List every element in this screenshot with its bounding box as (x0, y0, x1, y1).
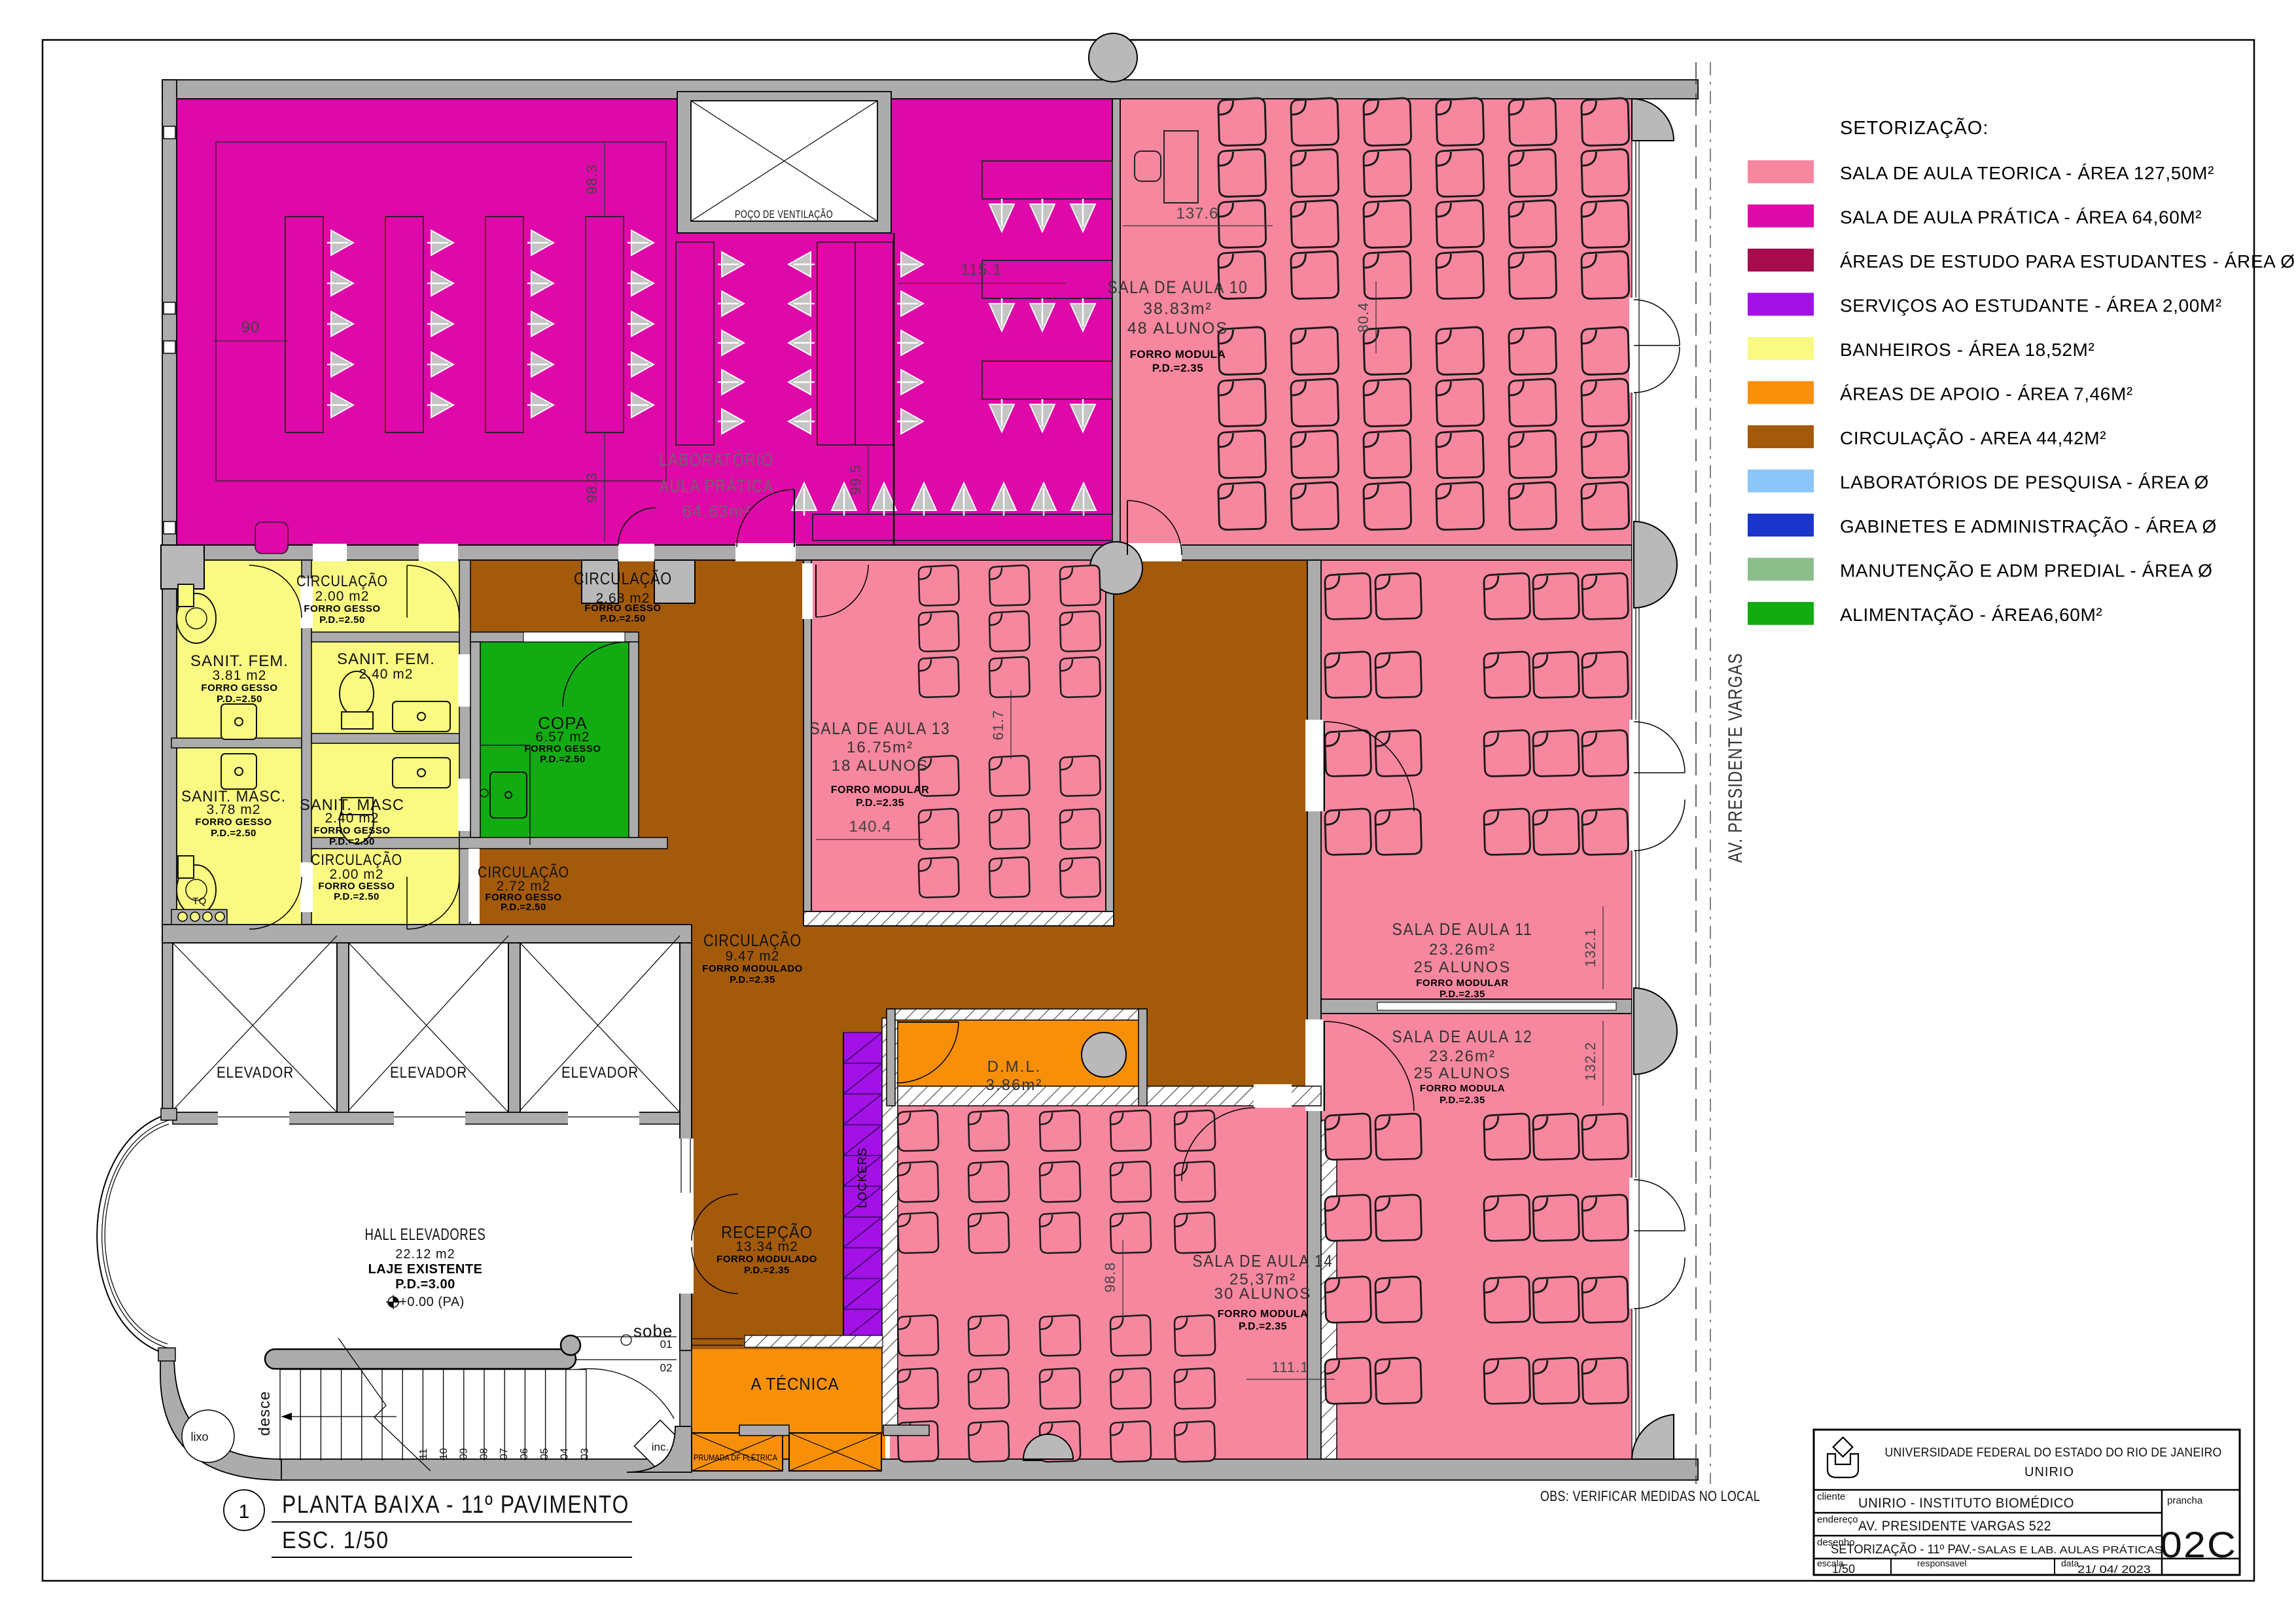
svg-text:HALL ELEVADORES: HALL ELEVADORES (365, 1226, 486, 1244)
svg-text:11: 11 (418, 1449, 429, 1460)
svg-text:P.D.=3.00: P.D.=3.00 (395, 1277, 455, 1292)
svg-text:FORRO GESSO: FORRO GESSO (304, 603, 380, 614)
svg-text:GABINETES E ADMINISTRAÇÃO - ÁR: GABINETES E ADMINISTRAÇÃO - ÁREA Ø (1840, 516, 2217, 537)
svg-text:P.D.=2.35: P.D.=2.35 (856, 798, 904, 809)
svg-text:SETORIZAÇÃO - 11º PAV.-: SETORIZAÇÃO - 11º PAV.- (1831, 1542, 1976, 1557)
svg-text:MANUTENÇÃO E ADM PREDIAL - ÁRE: MANUTENÇÃO E ADM PREDIAL - ÁREA Ø (1840, 561, 2213, 581)
svg-text:inc.: inc. (652, 1441, 669, 1453)
svg-text:prancha: prancha (2167, 1495, 2203, 1506)
svg-text:21/ 04/ 2023: 21/ 04/ 2023 (2077, 1563, 2151, 1576)
svg-text:FORRO MODULAR: FORRO MODULAR (1416, 978, 1509, 989)
svg-text:lixo: lixo (190, 1430, 208, 1443)
svg-text:01: 01 (660, 1338, 673, 1350)
svg-text:SANIT. FEM.: SANIT. FEM. (190, 652, 289, 670)
svg-text:FORRO MODULAR: FORRO MODULAR (831, 785, 929, 796)
svg-text:SALA DE AULA TEORICA - ÁREA 12: SALA DE AULA TEORICA - ÁREA 127,50M² (1840, 163, 2214, 183)
svg-text:SALA DE AULA 14: SALA DE AULA 14 (1193, 1251, 1333, 1271)
svg-text:SALA DE AULA PRÁTICA - ÁREA 64: SALA DE AULA PRÁTICA - ÁREA 64,60M² (1840, 207, 2202, 228)
svg-text:30 ALUNOS: 30 ALUNOS (1214, 1285, 1312, 1303)
svg-text:38.83m²: 38.83m² (1143, 300, 1212, 318)
svg-text:CIRCULAÇÃO - AREA 44,42M²: CIRCULAÇÃO - AREA 44,42M² (1840, 428, 2106, 448)
svg-text:3.86m²: 3.86m² (986, 1076, 1043, 1094)
svg-text:data: data (2061, 1558, 2079, 1568)
svg-text:23.26m²: 23.26m² (1429, 941, 1496, 959)
svg-text:P.D.=2.35: P.D.=2.35 (744, 1265, 790, 1276)
svg-text:132.2: 132.2 (1582, 1042, 1598, 1081)
svg-text:ELEVADOR: ELEVADOR (561, 1064, 639, 1082)
svg-text:PRUMADA DF FLÉTRICA: PRUMADA DF FLÉTRICA (694, 1453, 777, 1462)
svg-text:SANIT. FEM.: SANIT. FEM. (337, 650, 435, 668)
svg-text:98.8: 98.8 (1102, 1262, 1118, 1293)
svg-text:SERVIÇOS AO ESTUDANTE - ÁREA 2: SERVIÇOS AO ESTUDANTE - ÁREA 2,00M² (1840, 296, 2222, 316)
svg-text:endereço: endereço (1817, 1514, 1858, 1525)
svg-text:80.4: 80.4 (1355, 302, 1371, 333)
svg-text:05: 05 (539, 1448, 550, 1460)
svg-text:POÇO DE VENTILAÇÃO: POÇO DE VENTILAÇÃO (735, 208, 833, 221)
svg-text:115.1: 115.1 (961, 261, 1002, 279)
svg-text:SALA DE AULA 11: SALA DE AULA 11 (1392, 919, 1533, 939)
svg-text:2.40 m2: 2.40 m2 (325, 811, 380, 826)
svg-text:48 ALUNOS: 48 ALUNOS (1127, 319, 1228, 338)
svg-text:LABORATÓRIOS DE PESQUISA - ÁRE: LABORATÓRIOS DE PESQUISA - ÁREA Ø (1840, 472, 2209, 493)
svg-text:FORRO GESSO: FORRO GESSO (313, 825, 390, 836)
svg-text:FORRO MODULA: FORRO MODULA (1218, 1309, 1308, 1320)
svg-text:ELEVADOR: ELEVADOR (390, 1064, 467, 1082)
svg-text:SALA DE AULA 12: SALA DE AULA 12 (1392, 1027, 1533, 1046)
svg-text:16.75m²: 16.75m² (847, 739, 913, 756)
svg-text:OBS: VERIFICAR MEDIDAS NO LOCA: OBS: VERIFICAR MEDIDAS NO LOCAL (1540, 1488, 1760, 1504)
svg-text:FORRO MODULADO: FORRO MODULADO (702, 963, 803, 974)
svg-text:03: 03 (579, 1448, 590, 1460)
svg-text:98.3: 98.3 (584, 164, 600, 195)
svg-text:ÁREAS DE ESTUDO PARA ESTUDANTE: ÁREAS DE ESTUDO PARA ESTUDANTES - ÁREA Ø (1840, 251, 2295, 272)
svg-text:07: 07 (499, 1448, 510, 1460)
svg-text:09: 09 (459, 1448, 470, 1460)
svg-text:ELEVADOR: ELEVADOR (217, 1064, 294, 1082)
svg-text:P.D.=2.50: P.D.=2.50 (334, 891, 380, 902)
svg-text:desce: desce (256, 1390, 274, 1436)
svg-text:9.47 m2: 9.47 m2 (726, 949, 780, 964)
svg-text:BANHEIROS - ÁREA 18,52M²: BANHEIROS - ÁREA 18,52M² (1840, 340, 2094, 360)
svg-text:10: 10 (438, 1448, 450, 1460)
svg-text:AV. PRESIDENTE VARGAS 522: AV. PRESIDENTE VARGAS 522 (1858, 1519, 2051, 1534)
svg-text:SALA DE AULA 10: SALA DE AULA 10 (1108, 277, 1248, 297)
svg-text:02: 02 (660, 1362, 673, 1374)
svg-text:P.D.=2.35: P.D.=2.35 (1439, 989, 1485, 1000)
svg-text:UNIRIO: UNIRIO (2024, 1465, 2074, 1479)
svg-text:6.57 m2: 6.57 m2 (536, 730, 590, 745)
svg-text:D.M.L.: D.M.L. (987, 1058, 1042, 1076)
svg-text:P.D.=2.50: P.D.=2.50 (501, 902, 546, 913)
svg-text:3.81 m2: 3.81 m2 (213, 668, 267, 683)
svg-text:140.4: 140.4 (849, 818, 891, 836)
svg-text:ALIMENTAÇÃO - ÁREA6,60M²: ALIMENTAÇÃO - ÁREA6,60M² (1840, 605, 2102, 625)
svg-text:90: 90 (241, 319, 260, 336)
svg-text:23.26m²: 23.26m² (1429, 1048, 1496, 1065)
svg-text:LABORATÓRIO: LABORATÓRIO (660, 450, 774, 470)
svg-text:P.D.=2.50: P.D.=2.50 (217, 694, 262, 705)
svg-text:P.D.=2.35: P.D.=2.35 (1439, 1095, 1485, 1106)
svg-text:LOCKERS: LOCKERS (856, 1147, 869, 1208)
svg-text:UNIVERSIDADE FEDERAL DO ESTADO: UNIVERSIDADE FEDERAL DO ESTADO DO RIO DE… (1885, 1446, 2222, 1460)
svg-text:FORRO MODULA: FORRO MODULA (1420, 1083, 1505, 1094)
svg-text:22.12 m2: 22.12 m2 (395, 1247, 455, 1262)
svg-text:137.6: 137.6 (1176, 205, 1218, 222)
svg-text:111.1: 111.1 (1272, 1359, 1309, 1375)
svg-text:AV. PRESIDENTE VARGAS: AV. PRESIDENTE VARGAS (1725, 653, 1746, 863)
svg-text:2.40 m2: 2.40 m2 (359, 667, 414, 682)
svg-text:CIRCULAÇÃO: CIRCULAÇÃO (574, 569, 672, 588)
svg-text:02C: 02C (2160, 1524, 2237, 1565)
svg-text:+0.00 (PA): +0.00 (PA) (399, 1295, 465, 1309)
svg-text:99.5: 99.5 (847, 465, 864, 495)
svg-text:LAJE EXISTENTE: LAJE EXISTENTE (368, 1262, 483, 1277)
svg-text:P.D.=2.50: P.D.=2.50 (600, 613, 646, 624)
svg-text:25 ALUNOS: 25 ALUNOS (1414, 1065, 1511, 1082)
svg-text:FORRO MODULA: FORRO MODULA (1130, 348, 1226, 361)
svg-text:98.3: 98.3 (584, 472, 600, 503)
svg-text:UNIRIO - INSTITUTO BIOMÉDICO: UNIRIO - INSTITUTO BIOMÉDICO (1858, 1496, 2074, 1511)
svg-text:FORRO GESSO: FORRO GESSO (195, 817, 272, 828)
svg-text:2.00 m2: 2.00 m2 (330, 867, 384, 882)
svg-text:P.D.=2.35: P.D.=2.35 (730, 974, 775, 985)
svg-text:FORRO GESSO: FORRO GESSO (524, 743, 601, 754)
svg-text:CIRCULAÇÃO: CIRCULAÇÃO (311, 851, 402, 869)
svg-text:SALAS E LAB. AULAS PRÁTICAS: SALAS E LAB. AULAS PRÁTICAS (1977, 1544, 2163, 1556)
svg-text:FORRO GESSO: FORRO GESSO (584, 603, 661, 614)
svg-text:64.63m²: 64.63m² (682, 501, 751, 521)
svg-text:FORRO MODULADO: FORRO MODULADO (716, 1254, 817, 1265)
svg-text:132.1: 132.1 (1582, 928, 1598, 967)
svg-text:06: 06 (519, 1448, 530, 1460)
svg-text:P.D.=2.50: P.D.=2.50 (211, 828, 256, 839)
svg-text:FORRO GESSO: FORRO GESSO (318, 881, 395, 892)
svg-text:04: 04 (559, 1448, 571, 1460)
svg-text:P.D.=2.50: P.D.=2.50 (329, 836, 375, 847)
svg-text:TQ: TQ (192, 896, 207, 907)
svg-text:cliente: cliente (1817, 1491, 1845, 1502)
svg-text:P.D.=2.35: P.D.=2.35 (1152, 362, 1203, 374)
svg-text:SETORIZAÇÃO:: SETORIZAÇÃO: (1840, 116, 1988, 139)
svg-text:61.7: 61.7 (990, 710, 1006, 741)
svg-text:ÁREAS DE APOIO - ÁREA 7,46M²: ÁREAS DE APOIO - ÁREA 7,46M² (1840, 384, 2133, 404)
svg-text:ESC. 1/50: ESC. 1/50 (282, 1527, 389, 1553)
svg-text:A TÉCNICA: A TÉCNICA (751, 1374, 839, 1394)
svg-text:PLANTA BAIXA - 11º PAVIMEN: PLANTA BAIXA - 11º PAVIMENTO (282, 1491, 629, 1519)
svg-text:18 ALUNOS: 18 ALUNOS (832, 757, 929, 775)
svg-text:08: 08 (478, 1448, 489, 1460)
svg-text:P.D.=2.50: P.D.=2.50 (319, 614, 365, 626)
svg-text:SALA DE AULA 13: SALA DE AULA 13 (810, 718, 951, 738)
svg-text:FORRO GESSO: FORRO GESSO (201, 682, 277, 694)
svg-text:P.D.=2.50: P.D.=2.50 (540, 754, 586, 765)
svg-text:responsavel: responsavel (1917, 1558, 1967, 1568)
svg-text:CIRCULAÇÃO: CIRCULAÇÃO (296, 573, 388, 590)
svg-text:CIRCULAÇÃO: CIRCULAÇÃO (703, 930, 802, 950)
svg-text:AULA PRÁTICA: AULA PRÁTICA (660, 476, 774, 496)
svg-text:1: 1 (239, 1501, 250, 1523)
svg-text:3.78 m2: 3.78 m2 (207, 802, 261, 817)
svg-text:2.00 m2: 2.00 m2 (315, 589, 370, 604)
svg-text:13.34 m2: 13.34 m2 (735, 1239, 798, 1254)
svg-text:P.D.=2.35: P.D.=2.35 (1239, 1321, 1287, 1332)
svg-text:1/50: 1/50 (1832, 1562, 1855, 1576)
svg-text:25 ALUNOS: 25 ALUNOS (1414, 959, 1511, 976)
